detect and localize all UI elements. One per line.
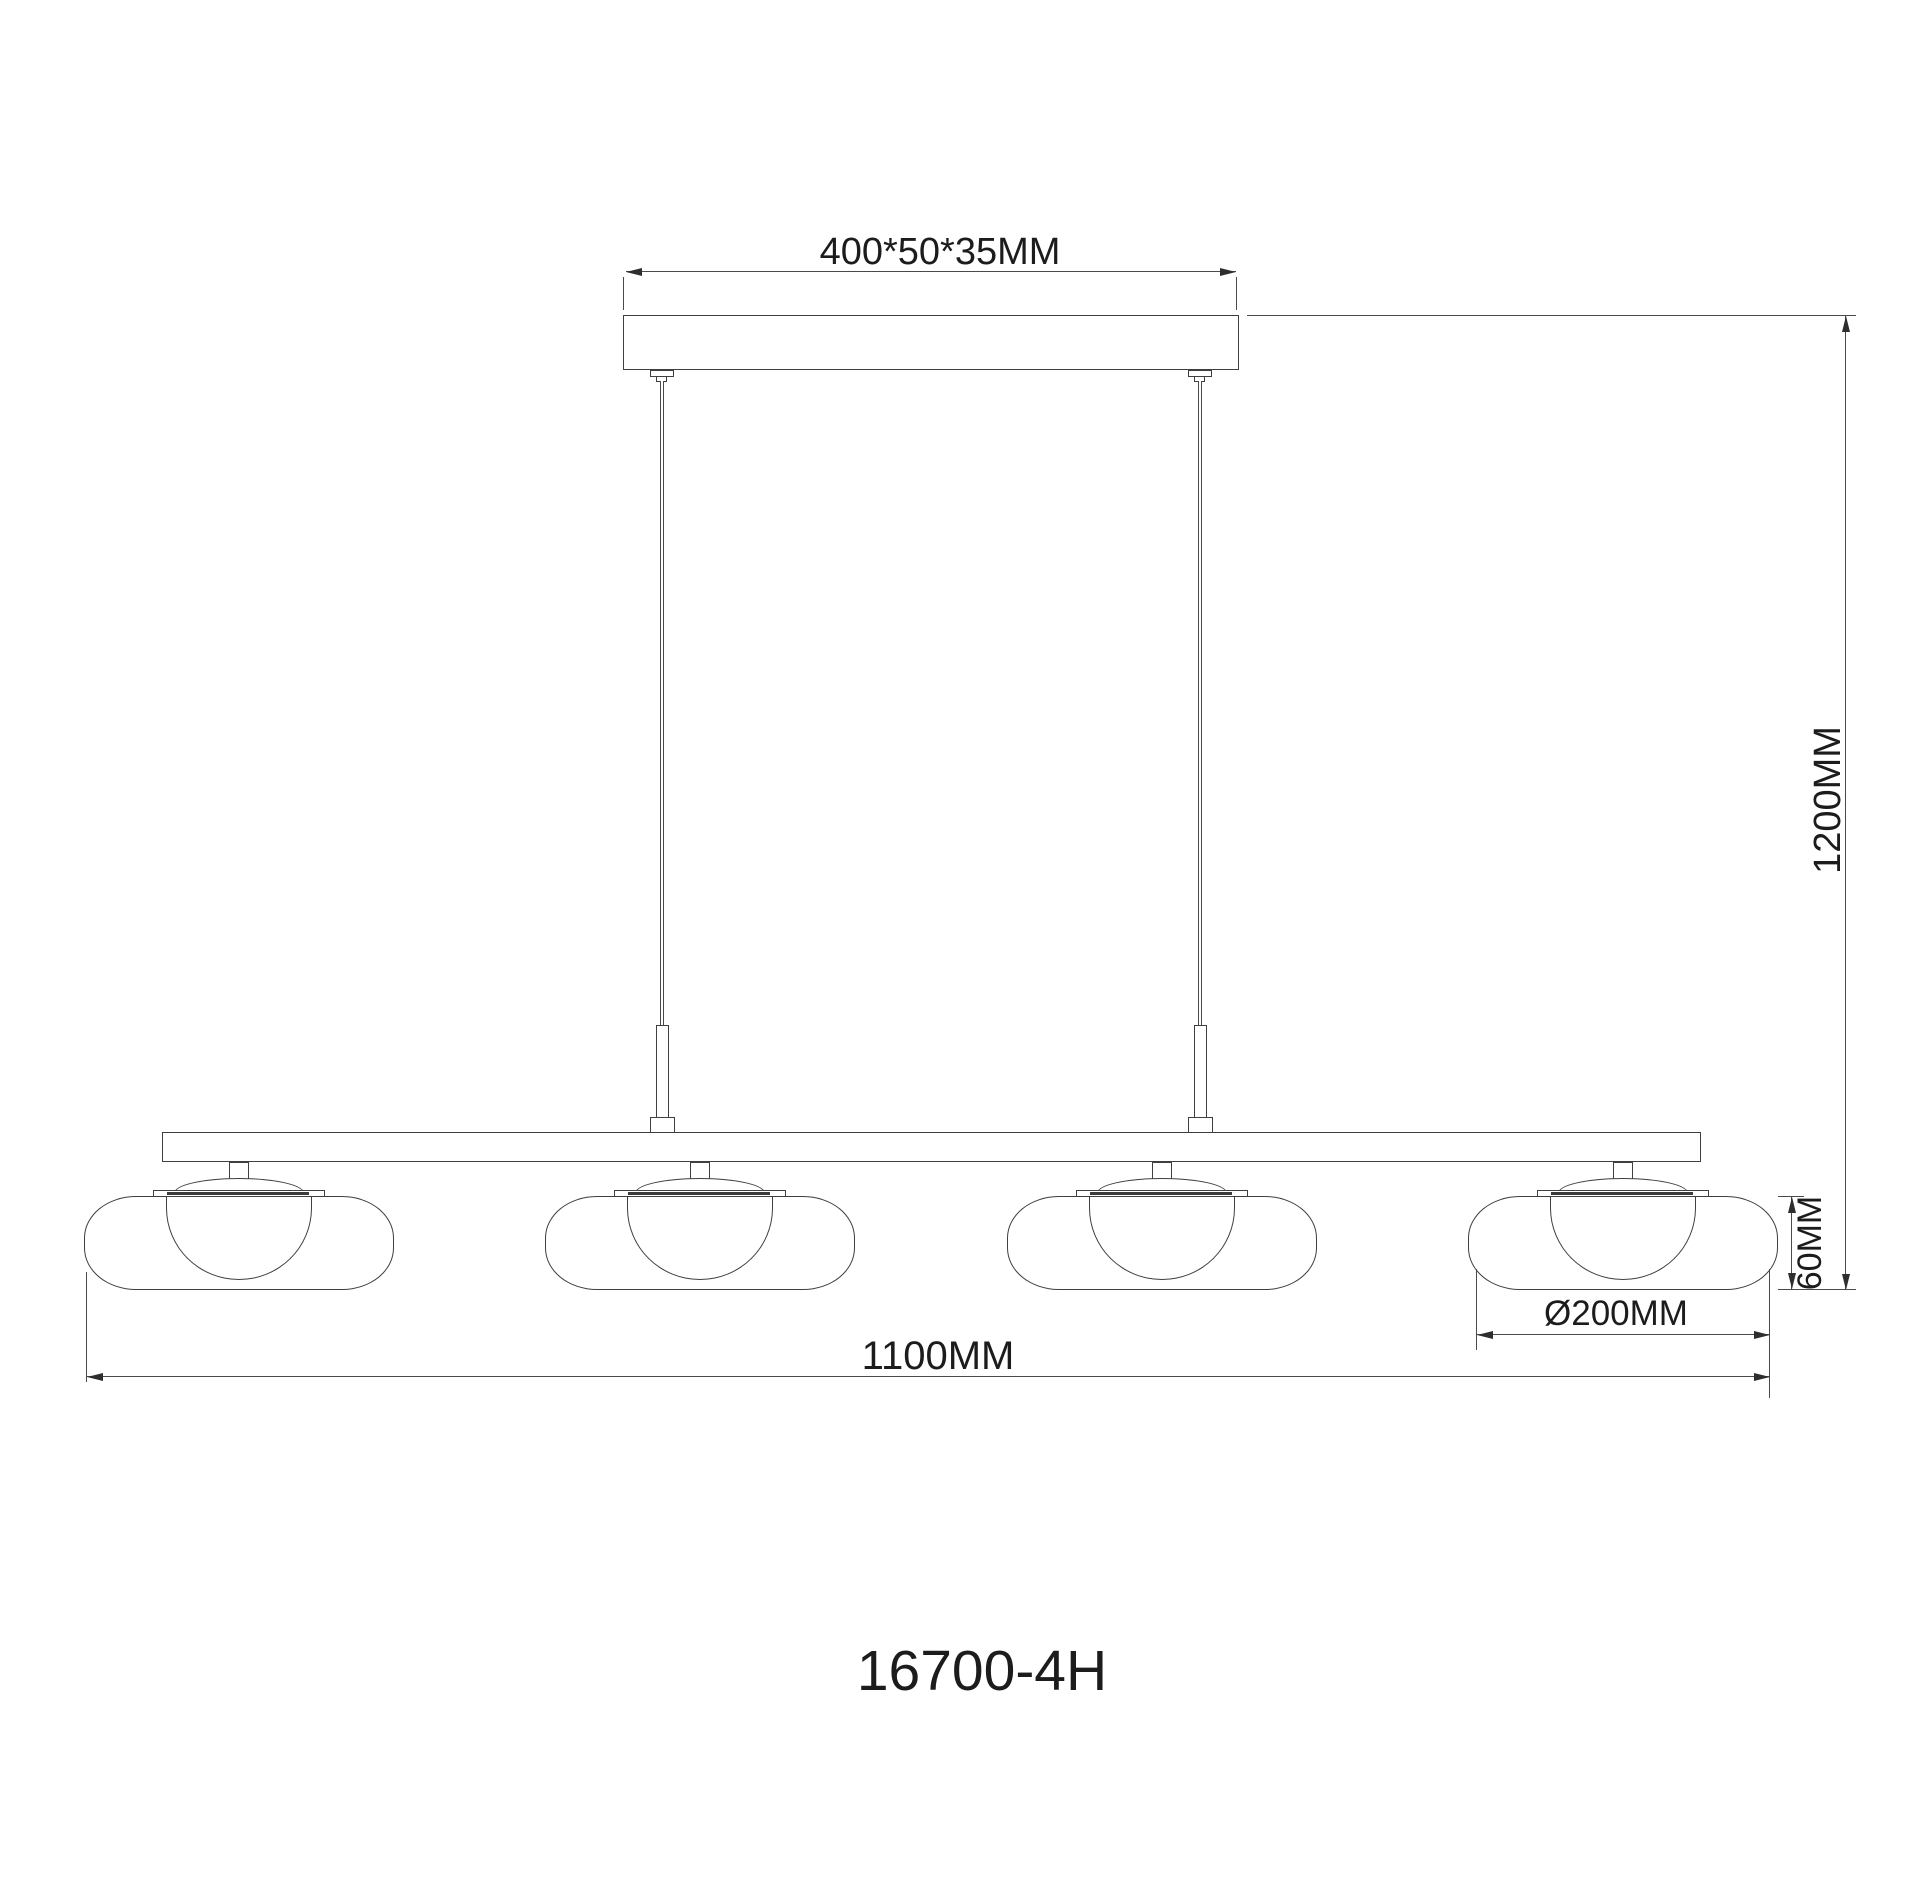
lamp-shade-4 xyxy=(1468,1162,1778,1292)
lamp-lid xyxy=(614,1190,786,1197)
shade-diameter-dimension-label: Ø200MM xyxy=(1466,1294,1766,1334)
dim-arrow-right-icon xyxy=(1754,1373,1770,1381)
lamp-lid-band xyxy=(1551,1192,1693,1195)
suspension-cable-right xyxy=(1198,381,1202,1027)
lamp-shade-2 xyxy=(545,1162,855,1292)
lamp-lid-band xyxy=(628,1192,770,1195)
cable-connector-left xyxy=(650,1117,675,1133)
dim-arrow-down-icon xyxy=(1842,1274,1850,1290)
dim-arrow-up-icon xyxy=(1842,316,1850,332)
canopy-dimension-line xyxy=(626,271,1236,272)
dim-arrow-left-icon xyxy=(626,268,642,276)
cable-adjuster-right xyxy=(1194,1025,1207,1118)
dim-arrow-right-icon xyxy=(1220,268,1236,276)
lamp-lid xyxy=(153,1190,325,1197)
lamp-shade-1 xyxy=(84,1162,394,1292)
model-number-label: 16700-4H xyxy=(762,1638,1202,1704)
drop-extension-line-top xyxy=(1247,315,1856,316)
shade-height-dimension-label: 60MM xyxy=(1792,1183,1828,1303)
lamp-lid-band xyxy=(1090,1192,1232,1195)
drop-dimension-label: 1200MM xyxy=(1808,720,1848,880)
canopy-extension-line-right xyxy=(1236,277,1237,310)
fixture-bar xyxy=(162,1132,1701,1162)
ceiling-canopy xyxy=(623,315,1239,370)
lamp-lid xyxy=(1076,1190,1248,1197)
overall-width-dimension-label: 1100MM xyxy=(738,1334,1138,1379)
lamp-lid-band xyxy=(167,1192,309,1195)
cable-connector-right xyxy=(1188,1117,1213,1133)
lamp-shade-3 xyxy=(1007,1162,1317,1292)
technical-drawing-canvas: 400*50*35MM xyxy=(0,0,1920,1901)
cable-adjuster-left xyxy=(656,1025,669,1118)
overall-width-extension-left xyxy=(86,1272,87,1382)
canopy-dimension-label: 400*50*35MM xyxy=(740,231,1140,274)
canopy-extension-line-left xyxy=(623,277,624,310)
shade-diameter-dimension-line xyxy=(1477,1334,1770,1335)
suspension-cable-left xyxy=(660,381,664,1027)
lamp-lid xyxy=(1537,1190,1709,1197)
dim-arrow-left-icon xyxy=(87,1373,103,1381)
